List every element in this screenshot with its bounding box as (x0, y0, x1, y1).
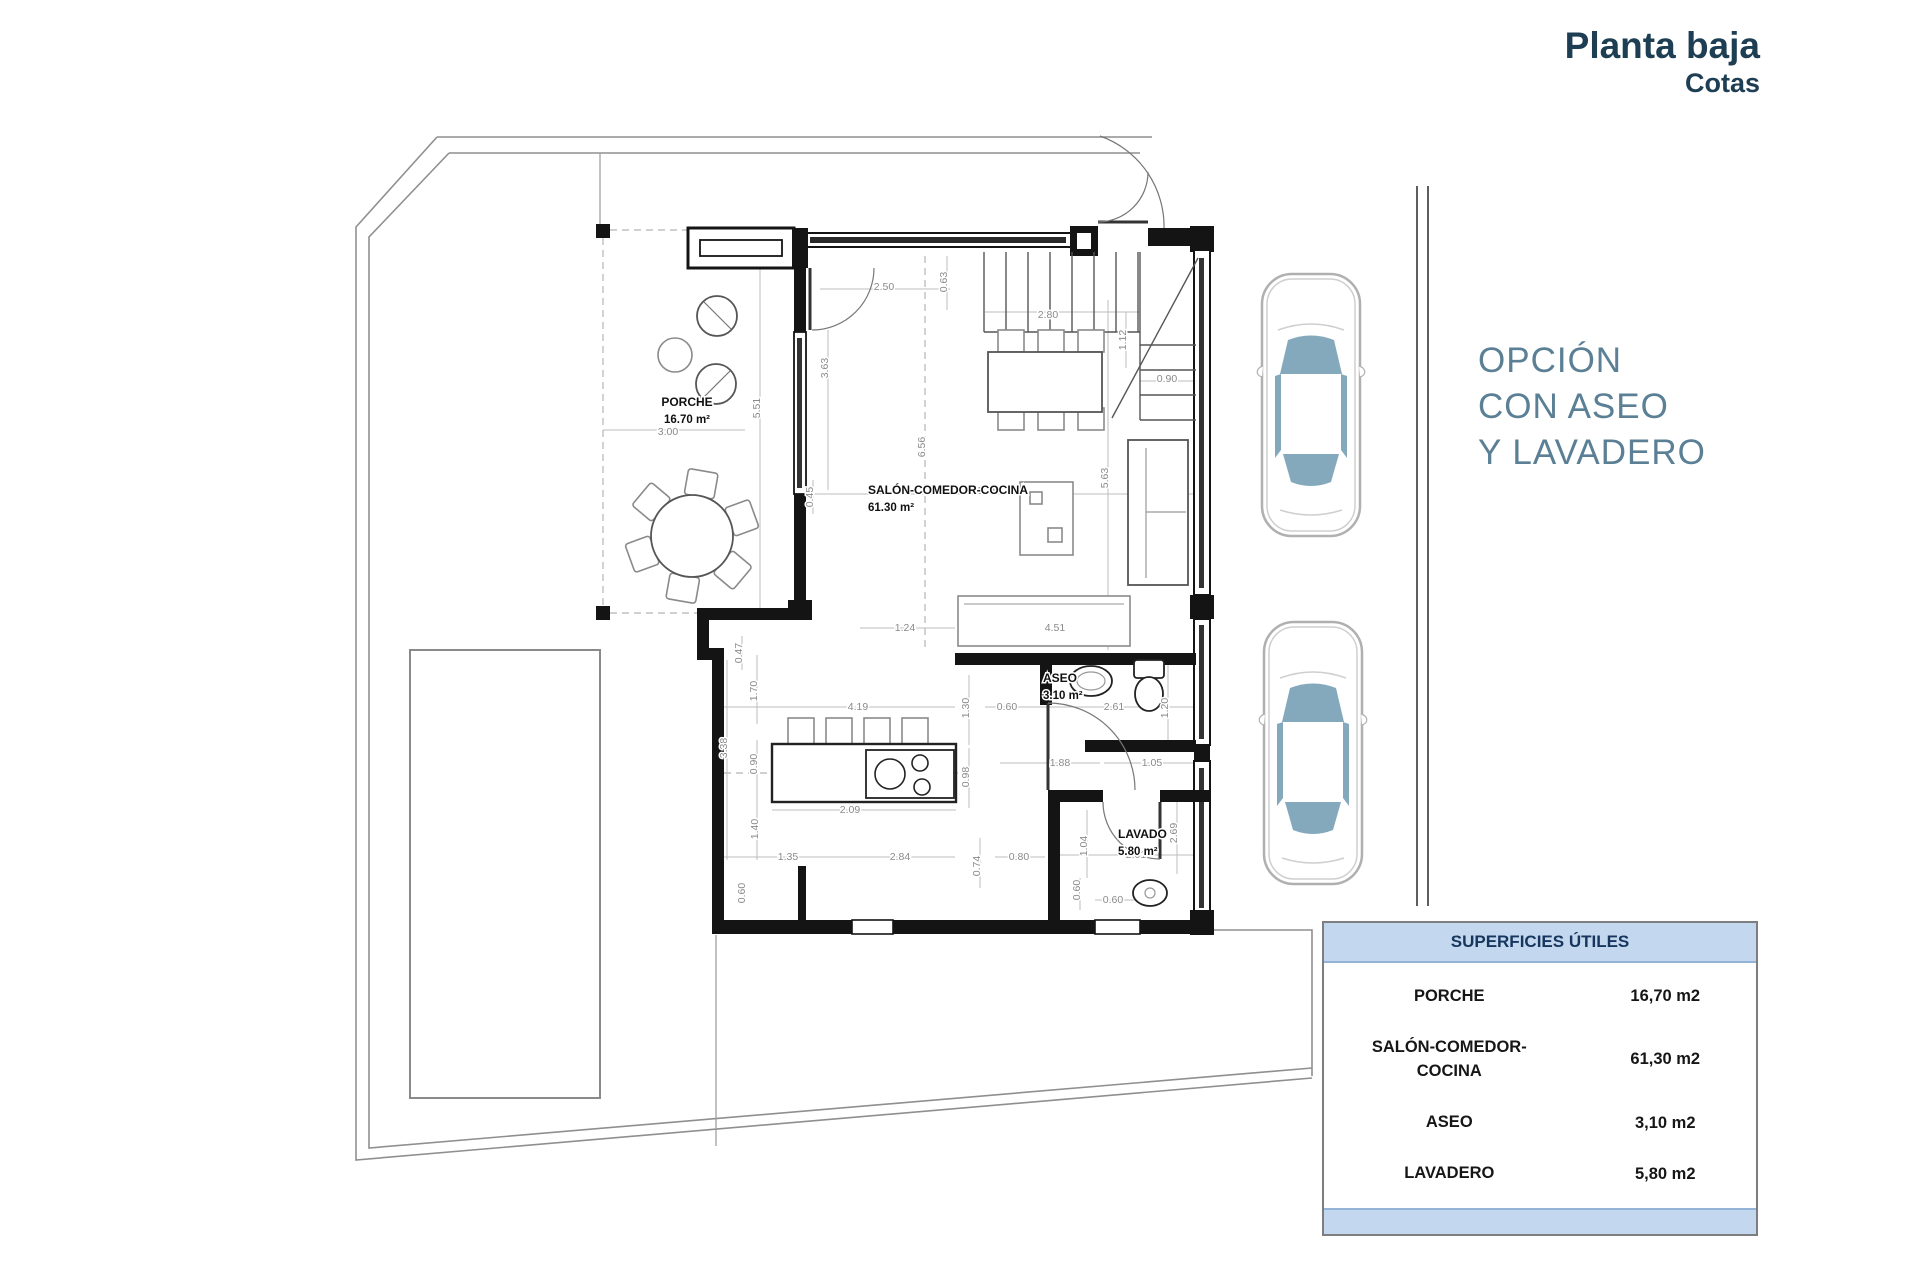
toilet-tank (1134, 660, 1164, 678)
title-block: Planta baja Cotas (1565, 26, 1760, 99)
dimension-label: 0.60 (736, 883, 748, 904)
dimension-label: 1.12 (1117, 330, 1129, 351)
dimension-label: 0.90 (1157, 373, 1178, 385)
dimension-label: 2.69 (1168, 823, 1180, 844)
pool (410, 650, 600, 1098)
dining-table (988, 330, 1104, 430)
surface-label: PORCHE (1324, 985, 1575, 1009)
dimension-label: 4.19 (848, 701, 869, 713)
option-note-line: CON ASEO (1478, 384, 1706, 430)
porch-side-table (658, 338, 692, 372)
dimension-label: 0.80 (1009, 851, 1030, 863)
dimension-label: 0.47 (733, 643, 745, 664)
porch-armchair (697, 296, 737, 336)
surfaces-table-body: PORCHE16,70 m2SALÓN-COMEDOR-COCINA61,30 … (1324, 963, 1756, 1208)
dimension-label: 1.05 (1142, 757, 1163, 769)
surface-label: LAVADERO (1324, 1162, 1575, 1186)
dimension-label: 5.63 (1099, 468, 1111, 489)
dimension-label: 2.61 (1104, 701, 1125, 713)
dimension-label: 1.24 (895, 622, 916, 634)
dimension-label: 2.50 (874, 281, 895, 293)
washer (1133, 880, 1167, 906)
car-icon (1259, 622, 1367, 884)
dimension-label: 1.20 (1159, 698, 1171, 719)
surfaces-table-row: LAVADERO5,80 m2 (1324, 1162, 1756, 1186)
dimension-label: 0.98 (960, 767, 972, 788)
road-lines (1417, 186, 1428, 906)
surfaces-table-footer (1324, 1208, 1756, 1234)
kitchen-island (772, 718, 956, 802)
surfaces-table: SUPERFICIES ÚTILES PORCHE16,70 m2SALÓN-C… (1322, 921, 1758, 1236)
dimension-label: 0.60 (997, 701, 1018, 713)
room-label-salon: SALÓN-COMEDOR-COCINA (868, 482, 1028, 497)
surfaces-table-row: ASEO3,10 m2 (1324, 1111, 1756, 1135)
dimension-label: 1.30 (960, 698, 972, 719)
dimension-label: 1.88 (1050, 757, 1071, 769)
surface-value: 16,70 m2 (1575, 987, 1756, 1006)
dimension-label: 6.56 (916, 437, 928, 458)
room-label-porche: PORCHE (661, 395, 712, 409)
dimension-label: 1.70 (748, 681, 760, 702)
surface-value: 61,30 m2 (1575, 1050, 1756, 1069)
surfaces-table-row: SALÓN-COMEDOR-COCINA61,30 m2 (1324, 1036, 1756, 1084)
room-label-aseo: ASEO (1043, 671, 1077, 685)
dimension-label: 2.09 (840, 804, 861, 816)
dimension-label: 3.63 (819, 358, 831, 379)
dimension-label: 1.40 (749, 819, 761, 840)
surfaces-table-row: PORCHE16,70 m2 (1324, 985, 1756, 1009)
page-subtitle: Cotas (1565, 67, 1760, 99)
porch-door (810, 268, 874, 330)
lavado-fixtures (1133, 880, 1167, 906)
dimension-label: 0.60 (1071, 880, 1083, 901)
option-note: OPCIÓN CON ASEO Y LAVADERO (1478, 338, 1706, 477)
dimension-label: 3.38 (718, 738, 730, 759)
dimension-label: 0.90 (748, 754, 760, 775)
dimension-label: 2.84 (890, 851, 911, 863)
gate-arc (1100, 136, 1164, 230)
surface-value: 5,80 m2 (1575, 1165, 1756, 1184)
dimension-label: 5.51 (751, 398, 763, 419)
entrance-door (1098, 172, 1148, 222)
cooktop (866, 750, 954, 798)
dimension-label: 3.00 (658, 426, 679, 438)
page-title: Planta baja (1565, 26, 1760, 67)
dimension-label: 0.74 (971, 856, 983, 877)
surfaces-table-header: SUPERFICIES ÚTILES (1324, 923, 1756, 963)
sofa (1128, 440, 1188, 585)
porch-furniture (625, 296, 759, 604)
porch-round-table (625, 468, 759, 603)
kitchen-peninsula (958, 596, 1130, 646)
dimension-label: 0.45 (804, 487, 816, 508)
room-label-aseo: 3.10 m² (1043, 690, 1083, 702)
page: 2.500.632.801.120.903.635.513.006.565.75… (0, 0, 1920, 1280)
dimension-label: 1.04 (1078, 836, 1090, 857)
room-label-lavado: LAVADO (1118, 827, 1167, 841)
room-label-porche: 16.70 m² (664, 414, 710, 426)
option-note-line: OPCIÓN (1478, 338, 1706, 384)
option-note-line: Y LAVADERO (1478, 430, 1706, 476)
car-icon (1257, 274, 1365, 536)
room-label-lavado: 5.80 m² (1118, 846, 1158, 858)
dimension-label: 1.35 (778, 851, 799, 863)
dimension-label: 2.80 (1038, 309, 1059, 321)
surface-label: ASEO (1324, 1111, 1575, 1135)
room-label-salon: 61.30 m² (868, 502, 914, 514)
dimension-label: 0.63 (938, 272, 950, 293)
dimension-label: 0.60 (1103, 894, 1124, 906)
surface-value: 3,10 m2 (1575, 1114, 1756, 1133)
surface-label: SALÓN-COMEDOR-COCINA (1324, 1036, 1575, 1084)
dimension-label: 4.51 (1045, 622, 1066, 634)
